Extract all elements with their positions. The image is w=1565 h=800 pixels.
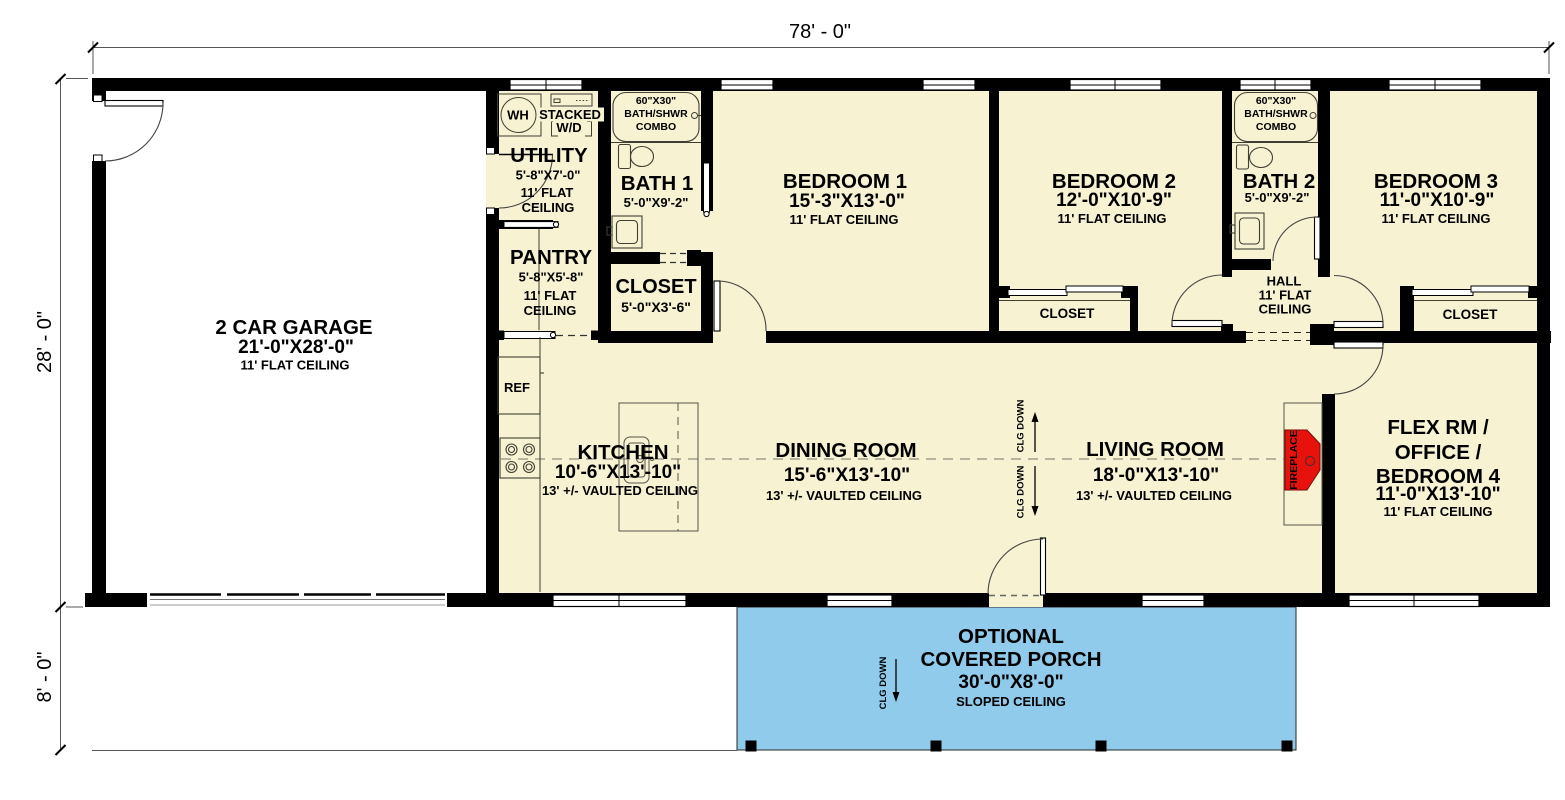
- svg-text:HALL: HALL: [1267, 274, 1302, 289]
- svg-text:5'-8"X7'-0": 5'-8"X7'-0": [516, 168, 581, 183]
- svg-text:2 CAR GARAGE: 2 CAR GARAGE: [215, 316, 372, 339]
- svg-text:CLOSET: CLOSET: [1443, 307, 1499, 322]
- svg-text:LIVING ROOM: LIVING ROOM: [1086, 438, 1224, 461]
- svg-text:30'-0"X8'-0": 30'-0"X8'-0": [958, 672, 1063, 693]
- svg-text:CLOSET: CLOSET: [615, 276, 696, 298]
- svg-text:11' FLAT CEILING: 11' FLAT CEILING: [1381, 211, 1490, 226]
- svg-text:CLG DOWN: CLG DOWN: [878, 656, 889, 709]
- svg-text:OPTIONAL: OPTIONAL: [958, 625, 1064, 648]
- svg-text:11' FLAT: 11' FLAT: [1259, 288, 1312, 303]
- svg-text:8' - 0": 8' - 0": [34, 652, 56, 703]
- svg-text:FIREPLACE: FIREPLACE: [1288, 430, 1300, 490]
- svg-text:CEILING: CEILING: [524, 303, 577, 318]
- svg-text:SLOPED CEILING: SLOPED CEILING: [956, 694, 1066, 709]
- svg-text:CLG DOWN: CLG DOWN: [1016, 399, 1027, 452]
- svg-text:11' FLAT CEILING: 11' FLAT CEILING: [1057, 211, 1166, 226]
- svg-text:5'-0"X9'-2": 5'-0"X9'-2": [1245, 190, 1310, 205]
- svg-text:28' - 0": 28' - 0": [34, 311, 56, 373]
- svg-text:OFFICE /: OFFICE /: [1395, 441, 1482, 464]
- svg-text:21'-0"X28'-0": 21'-0"X28'-0": [238, 337, 354, 358]
- svg-text:18'-0"X13'-10": 18'-0"X13'-10": [1093, 465, 1219, 486]
- svg-text:11' FLAT CEILING: 11' FLAT CEILING: [240, 358, 349, 373]
- svg-text:5'-0"X9'-2": 5'-0"X9'-2": [624, 195, 689, 210]
- svg-text:60"X30": 60"X30": [1256, 95, 1296, 107]
- svg-text:13' +/- VAULTED CEILING: 13' +/- VAULTED CEILING: [1076, 488, 1232, 503]
- svg-text:BATH/SHWR: BATH/SHWR: [1244, 108, 1308, 120]
- svg-text:BATH 1: BATH 1: [621, 172, 694, 195]
- svg-text:13' +/- VAULTED CEILING: 13' +/- VAULTED CEILING: [766, 488, 922, 503]
- svg-text:DINING ROOM: DINING ROOM: [775, 439, 916, 462]
- svg-text:60"X30": 60"X30": [636, 95, 676, 107]
- svg-text:BEDROOM 1: BEDROOM 1: [783, 170, 907, 193]
- svg-text:11'-0"X13'-10": 11'-0"X13'-10": [1375, 484, 1500, 505]
- svg-text:13' +/- VAULTED CEILING: 13' +/- VAULTED CEILING: [542, 483, 698, 498]
- svg-text:COVERED PORCH: COVERED PORCH: [920, 648, 1101, 671]
- svg-text:COMBO: COMBO: [1256, 121, 1296, 133]
- svg-text:5'-8"X5'-8": 5'-8"X5'-8": [519, 270, 584, 285]
- svg-text:UTILITY: UTILITY: [510, 144, 588, 167]
- svg-text:5'-0"X3'-6": 5'-0"X3'-6": [621, 299, 691, 315]
- svg-text:11' FLAT: 11' FLAT: [521, 185, 574, 200]
- svg-text:CEILING: CEILING: [1259, 302, 1312, 317]
- svg-text:WH: WH: [507, 108, 529, 123]
- svg-text:12'-0"X10'-9": 12'-0"X10'-9": [1056, 190, 1172, 211]
- svg-text:COMBO: COMBO: [636, 121, 676, 133]
- svg-text:CEILING: CEILING: [522, 200, 575, 215]
- svg-text:FLEX RM /: FLEX RM /: [1387, 416, 1489, 439]
- svg-text:11' FLAT CEILING: 11' FLAT CEILING: [1383, 504, 1492, 519]
- svg-text:W/D: W/D: [556, 120, 581, 135]
- svg-text:11' FLAT CEILING: 11' FLAT CEILING: [789, 212, 898, 227]
- svg-text:78' - 0": 78' - 0": [789, 21, 851, 43]
- svg-text:11'-0"X10'-9": 11'-0"X10'-9": [1380, 190, 1495, 211]
- svg-text:10'-6"X13'-10": 10'-6"X13'-10": [555, 462, 681, 483]
- svg-text:15'-3"X13'-0": 15'-3"X13'-0": [789, 191, 905, 212]
- svg-text:CLOSET: CLOSET: [1040, 306, 1096, 321]
- svg-text:CLG DOWN: CLG DOWN: [1016, 465, 1027, 518]
- svg-text:REF: REF: [504, 380, 530, 395]
- svg-text:15'-6"X13'-10": 15'-6"X13'-10": [784, 465, 910, 486]
- svg-text:PANTRY: PANTRY: [510, 246, 592, 269]
- svg-text:11' FLAT: 11' FLAT: [524, 288, 577, 303]
- svg-text:KITCHEN: KITCHEN: [577, 441, 668, 464]
- svg-text:BATH/SHWR: BATH/SHWR: [624, 108, 688, 120]
